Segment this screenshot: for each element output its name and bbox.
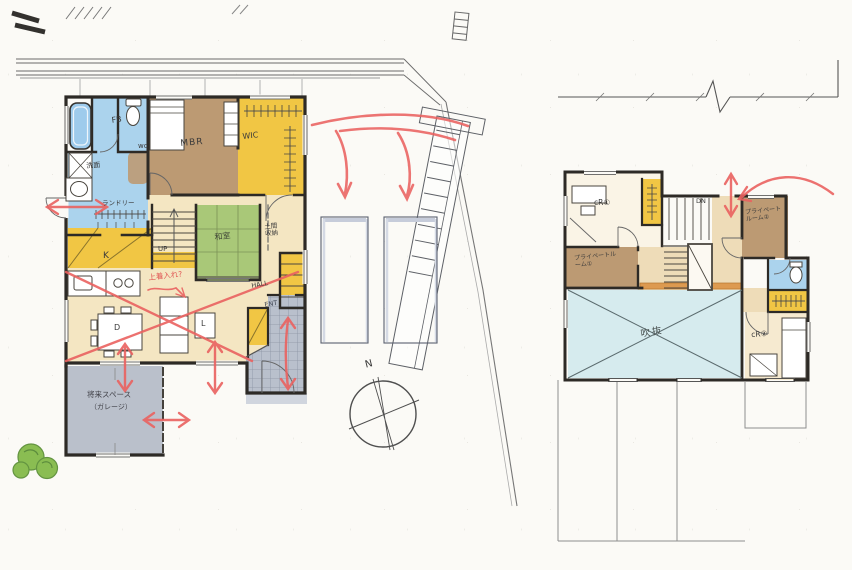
toilet-bowl xyxy=(790,267,802,283)
label-washroom: 洗面 xyxy=(86,161,101,170)
label-laundry: ランドリー xyxy=(102,200,135,207)
label-stairs-up: UP xyxy=(158,245,167,253)
label-dining: D xyxy=(114,323,120,332)
plan-drawing xyxy=(0,0,852,570)
label-kitchen: K xyxy=(103,251,109,261)
toilet-bowl xyxy=(127,107,140,126)
floor2-stairs xyxy=(662,198,712,290)
label-kids-room-2: cR② xyxy=(751,330,768,340)
label-future-space-sub: （ガレージ） xyxy=(90,403,132,411)
floor-plan-sketch: FB wc 洗面 ランドリー MBR WIC UP 和室 土間収納 K D L … xyxy=(0,0,852,570)
corner-marks xyxy=(12,5,469,96)
toilet-tank xyxy=(790,262,802,267)
exterior-stair-ladder xyxy=(373,107,485,372)
kitchen-counter xyxy=(68,271,140,296)
garden-bushes xyxy=(13,444,58,479)
compass xyxy=(349,377,419,450)
chair xyxy=(581,206,595,215)
label-walk-in-closet: WIC xyxy=(242,130,259,141)
label-master-bedroom: MBR xyxy=(180,137,204,149)
label-stairs-down: DN xyxy=(696,198,706,205)
label-living: L xyxy=(201,319,205,328)
double-bed xyxy=(150,100,184,150)
bed xyxy=(782,318,806,378)
label-bath: FB xyxy=(111,115,122,126)
toilet-tank xyxy=(126,99,141,106)
label-toilet: wc xyxy=(138,142,148,150)
label-kids-room-1: cR① xyxy=(594,199,610,208)
label-doma-storage: 土間収納 xyxy=(264,222,281,239)
label-future-space: 将来スペース xyxy=(87,391,131,400)
